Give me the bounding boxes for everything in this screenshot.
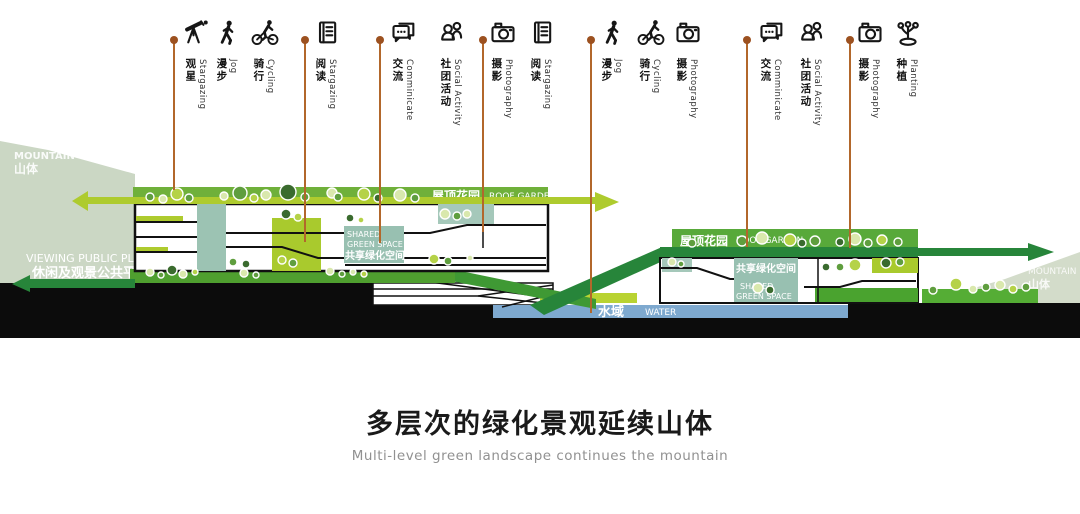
shared-left-line1: SHARED [347, 230, 380, 239]
people-icon [798, 18, 826, 48]
activity-label-en: Planting [908, 58, 917, 98]
activity-label-cn: 社团活动 [440, 58, 451, 108]
activity-item: 漫步 Jog [593, 18, 633, 48]
activity-label-cn: 种植 [896, 58, 907, 83]
activity-label-en: Jog [228, 58, 237, 74]
activity-label-cn: 骑行 [253, 58, 264, 83]
book-icon [528, 18, 556, 48]
architecture-section-diagram: MOUNTAIN 山体 VIEWING PUBLIC PLATFORM 休闲及观… [0, 0, 1080, 514]
shared-left-line3: 共享绿化空间 [345, 249, 405, 262]
activity-label-cn: 交流 [760, 58, 771, 83]
activity-label-cn: 摄影 [858, 58, 869, 83]
title-en: Multi-level green landscape continues th… [0, 448, 1080, 464]
roof-garden-right-cn: 屋顶花园 [680, 233, 728, 248]
activity-label-en: Social Activity [812, 58, 821, 126]
activity-label-en: Stargazing [197, 58, 206, 110]
shared-right-line3: GREEN SPACE [736, 292, 792, 301]
activity-item: 摄影 Photography [483, 18, 523, 48]
book-icon [313, 18, 341, 48]
telescope-icon [183, 18, 211, 48]
activity-label-cn: 社团活动 [800, 58, 811, 108]
camera-icon [489, 18, 517, 48]
activity-label-en: Photography [503, 58, 512, 119]
activity-label-en: Comminicate [404, 58, 413, 121]
leader-line [746, 40, 748, 247]
activity-item: 骑行 Cycling [245, 18, 285, 48]
activity-label-cn: 观星 [185, 58, 196, 83]
activity-label-en: Cycling [651, 58, 660, 94]
cyclist-icon [637, 18, 665, 48]
activity-item: 漫步 Jog [208, 18, 248, 48]
activity-item: 摄影 Photography [668, 18, 708, 48]
shared-right-line1: 共享绿化空间 [736, 262, 796, 275]
title-cn: 多层次的绿化景观延续山体 [0, 402, 1080, 441]
leader-line [304, 40, 306, 242]
mountain-right-label-cn: 山体 [1028, 277, 1051, 291]
activity-label-en: Social Activity [452, 58, 461, 126]
mountain-left-label-cn: 山体 [14, 161, 39, 176]
activity-item: 种植 Planting [888, 18, 928, 48]
activity-label-en: Stargazing [327, 58, 336, 110]
people-icon [438, 18, 466, 48]
mountain-left-label-en: MOUNTAIN [14, 151, 75, 162]
caption: 多层次的绿化景观延续山体 Multi-level green landscape… [0, 402, 1080, 464]
activity-label-cn: 漫步 [601, 58, 612, 83]
chat-bubbles-icon [758, 18, 786, 48]
walking-person-icon [599, 18, 627, 48]
activity-label-cn: 阅读 [530, 58, 541, 83]
activity-label-en: Comminicate [772, 58, 781, 121]
camera-icon [856, 18, 884, 48]
activity-label-cn: 交流 [392, 58, 403, 83]
activity-label-cn: 骑行 [639, 58, 650, 83]
activity-item: 社团活动 Social Activity [792, 18, 832, 48]
activity-label-cn: 摄影 [491, 58, 502, 83]
mountain-right-label-en: MOUNTAIN [1028, 267, 1077, 277]
water-label-en: WATER [645, 308, 676, 318]
activity-item: 阅读 Stargazing [307, 18, 347, 48]
leader-line [849, 40, 851, 248]
leader-line [482, 40, 484, 232]
roof-arrow-right [918, 243, 1054, 261]
chat-bubbles-icon [390, 18, 418, 48]
leader-line [379, 40, 381, 243]
camera-icon [674, 18, 702, 48]
leader-line [173, 40, 175, 190]
right-roof-slab [660, 247, 918, 258]
activity-item: 骑行 Cycling [631, 18, 671, 48]
activity-label-cn: 漫步 [216, 58, 227, 83]
activity-item: 交流 Comminicate [752, 18, 792, 48]
activity-label-en: Photography [688, 58, 697, 119]
activity-label-en: Jog [613, 58, 622, 74]
shared-green-space-right: 共享绿化空间 SHARED GREEN SPACE [734, 258, 798, 302]
leader-line [590, 40, 592, 313]
activity-label-en: Stargazing [542, 58, 551, 110]
left-core-teal [197, 204, 226, 271]
cyclist-icon [251, 18, 279, 48]
water-label-cn: 水域 [598, 304, 624, 320]
activity-label-en: Cycling [265, 58, 274, 94]
activity-item: 交流 Comminicate [384, 18, 424, 48]
activity-item: 摄影 Photography [850, 18, 890, 48]
shared-green-space-left: SHARED GREEN SPACE 共享绿化空间 [344, 226, 405, 263]
activity-item: 社团活动 Social Activity [432, 18, 472, 48]
activity-label-cn: 摄影 [676, 58, 687, 83]
shared-left-line2: GREEN SPACE [347, 240, 403, 249]
left-building: SHARED GREEN SPACE 共享绿化空间 屋顶花园 ROOF GARD… [72, 187, 619, 283]
activity-label-cn: 阅读 [315, 58, 326, 83]
sprout-icon [894, 18, 922, 48]
activity-label-en: Photography [870, 58, 879, 119]
activity-item: 阅读 Stargazing [522, 18, 562, 48]
walking-person-icon [214, 18, 242, 48]
right-tree-strip [922, 289, 1038, 303]
